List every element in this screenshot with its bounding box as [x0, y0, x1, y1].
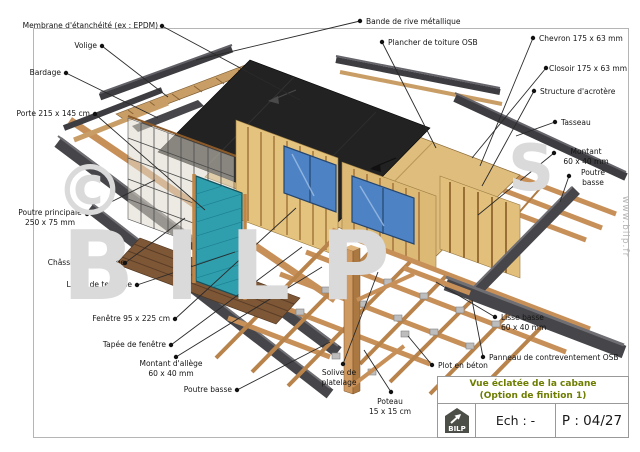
page-number: P : 04/27: [556, 404, 628, 438]
label-closoir: Closoir 175 x 63 mm: [549, 64, 627, 74]
bilp-logo-icon: BILP: [443, 407, 471, 435]
logo-text: BILP: [448, 425, 466, 433]
label-montant: Montant 60 x 40 mm: [560, 147, 612, 166]
concrete-plot: [430, 329, 438, 335]
label-tapee-fenetre: Tapée de fenêtre: [103, 340, 166, 350]
label-membrane: Membrane d'étanchéité (ex : EPDM): [23, 21, 158, 31]
label-structure-acrotere: Structure d'acrotère: [540, 87, 615, 97]
label-lisse-basse: Lisse basse 60 x 40 mm: [501, 313, 546, 332]
title-line-1: Vue éclatée de la cabane: [438, 378, 628, 390]
concrete-plot: [401, 331, 409, 337]
website-watermark: www.bilp.fr: [620, 196, 630, 257]
plan-page: © S BILP: [0, 0, 640, 452]
label-poutre-basse-left: Poutre basse: [184, 385, 232, 395]
watermark-bilp: BILP: [62, 212, 420, 322]
label-bardage: Bardage: [30, 68, 61, 78]
title-line-2: (Option de finition 1): [438, 390, 628, 402]
bilp-logo: BILP: [438, 404, 476, 438]
drawing-title: Vue éclatée de la cabane (Option de fini…: [438, 377, 628, 404]
label-solive-platelage: Solive de platelage: [307, 368, 371, 387]
concrete-plot: [456, 307, 464, 313]
concrete-plot: [420, 293, 428, 299]
label-bande-rive: Bande de rive métallique: [366, 17, 460, 27]
concrete-plot: [466, 343, 474, 349]
title-block: Vue éclatée de la cabane (Option de fini…: [437, 376, 629, 438]
label-panneau-osb: Panneau de contreventement OSB: [489, 353, 619, 363]
label-montant-allege: Montant d'allège 60 x 40 mm: [138, 359, 204, 378]
scale-value: Ech : -: [476, 404, 556, 438]
watermark-letter-s: S: [508, 132, 554, 206]
concrete-plot: [492, 321, 500, 327]
label-plancher-osb: Plancher de toiture OSB: [388, 38, 478, 48]
label-volige: Volige: [74, 41, 97, 51]
concrete-plot: [332, 353, 340, 359]
label-tasseau: Tasseau: [561, 118, 591, 128]
label-plot-beton: Plot en béton: [438, 361, 488, 371]
label-porte: Porte 215 x 145 cm: [16, 109, 90, 119]
label-poutre-basse-right: Poutre basse: [575, 168, 611, 187]
label-poteau: Poteau 15 x 15 cm: [362, 397, 418, 416]
label-chevron: Chevron 175 x 63 mm: [539, 34, 623, 44]
